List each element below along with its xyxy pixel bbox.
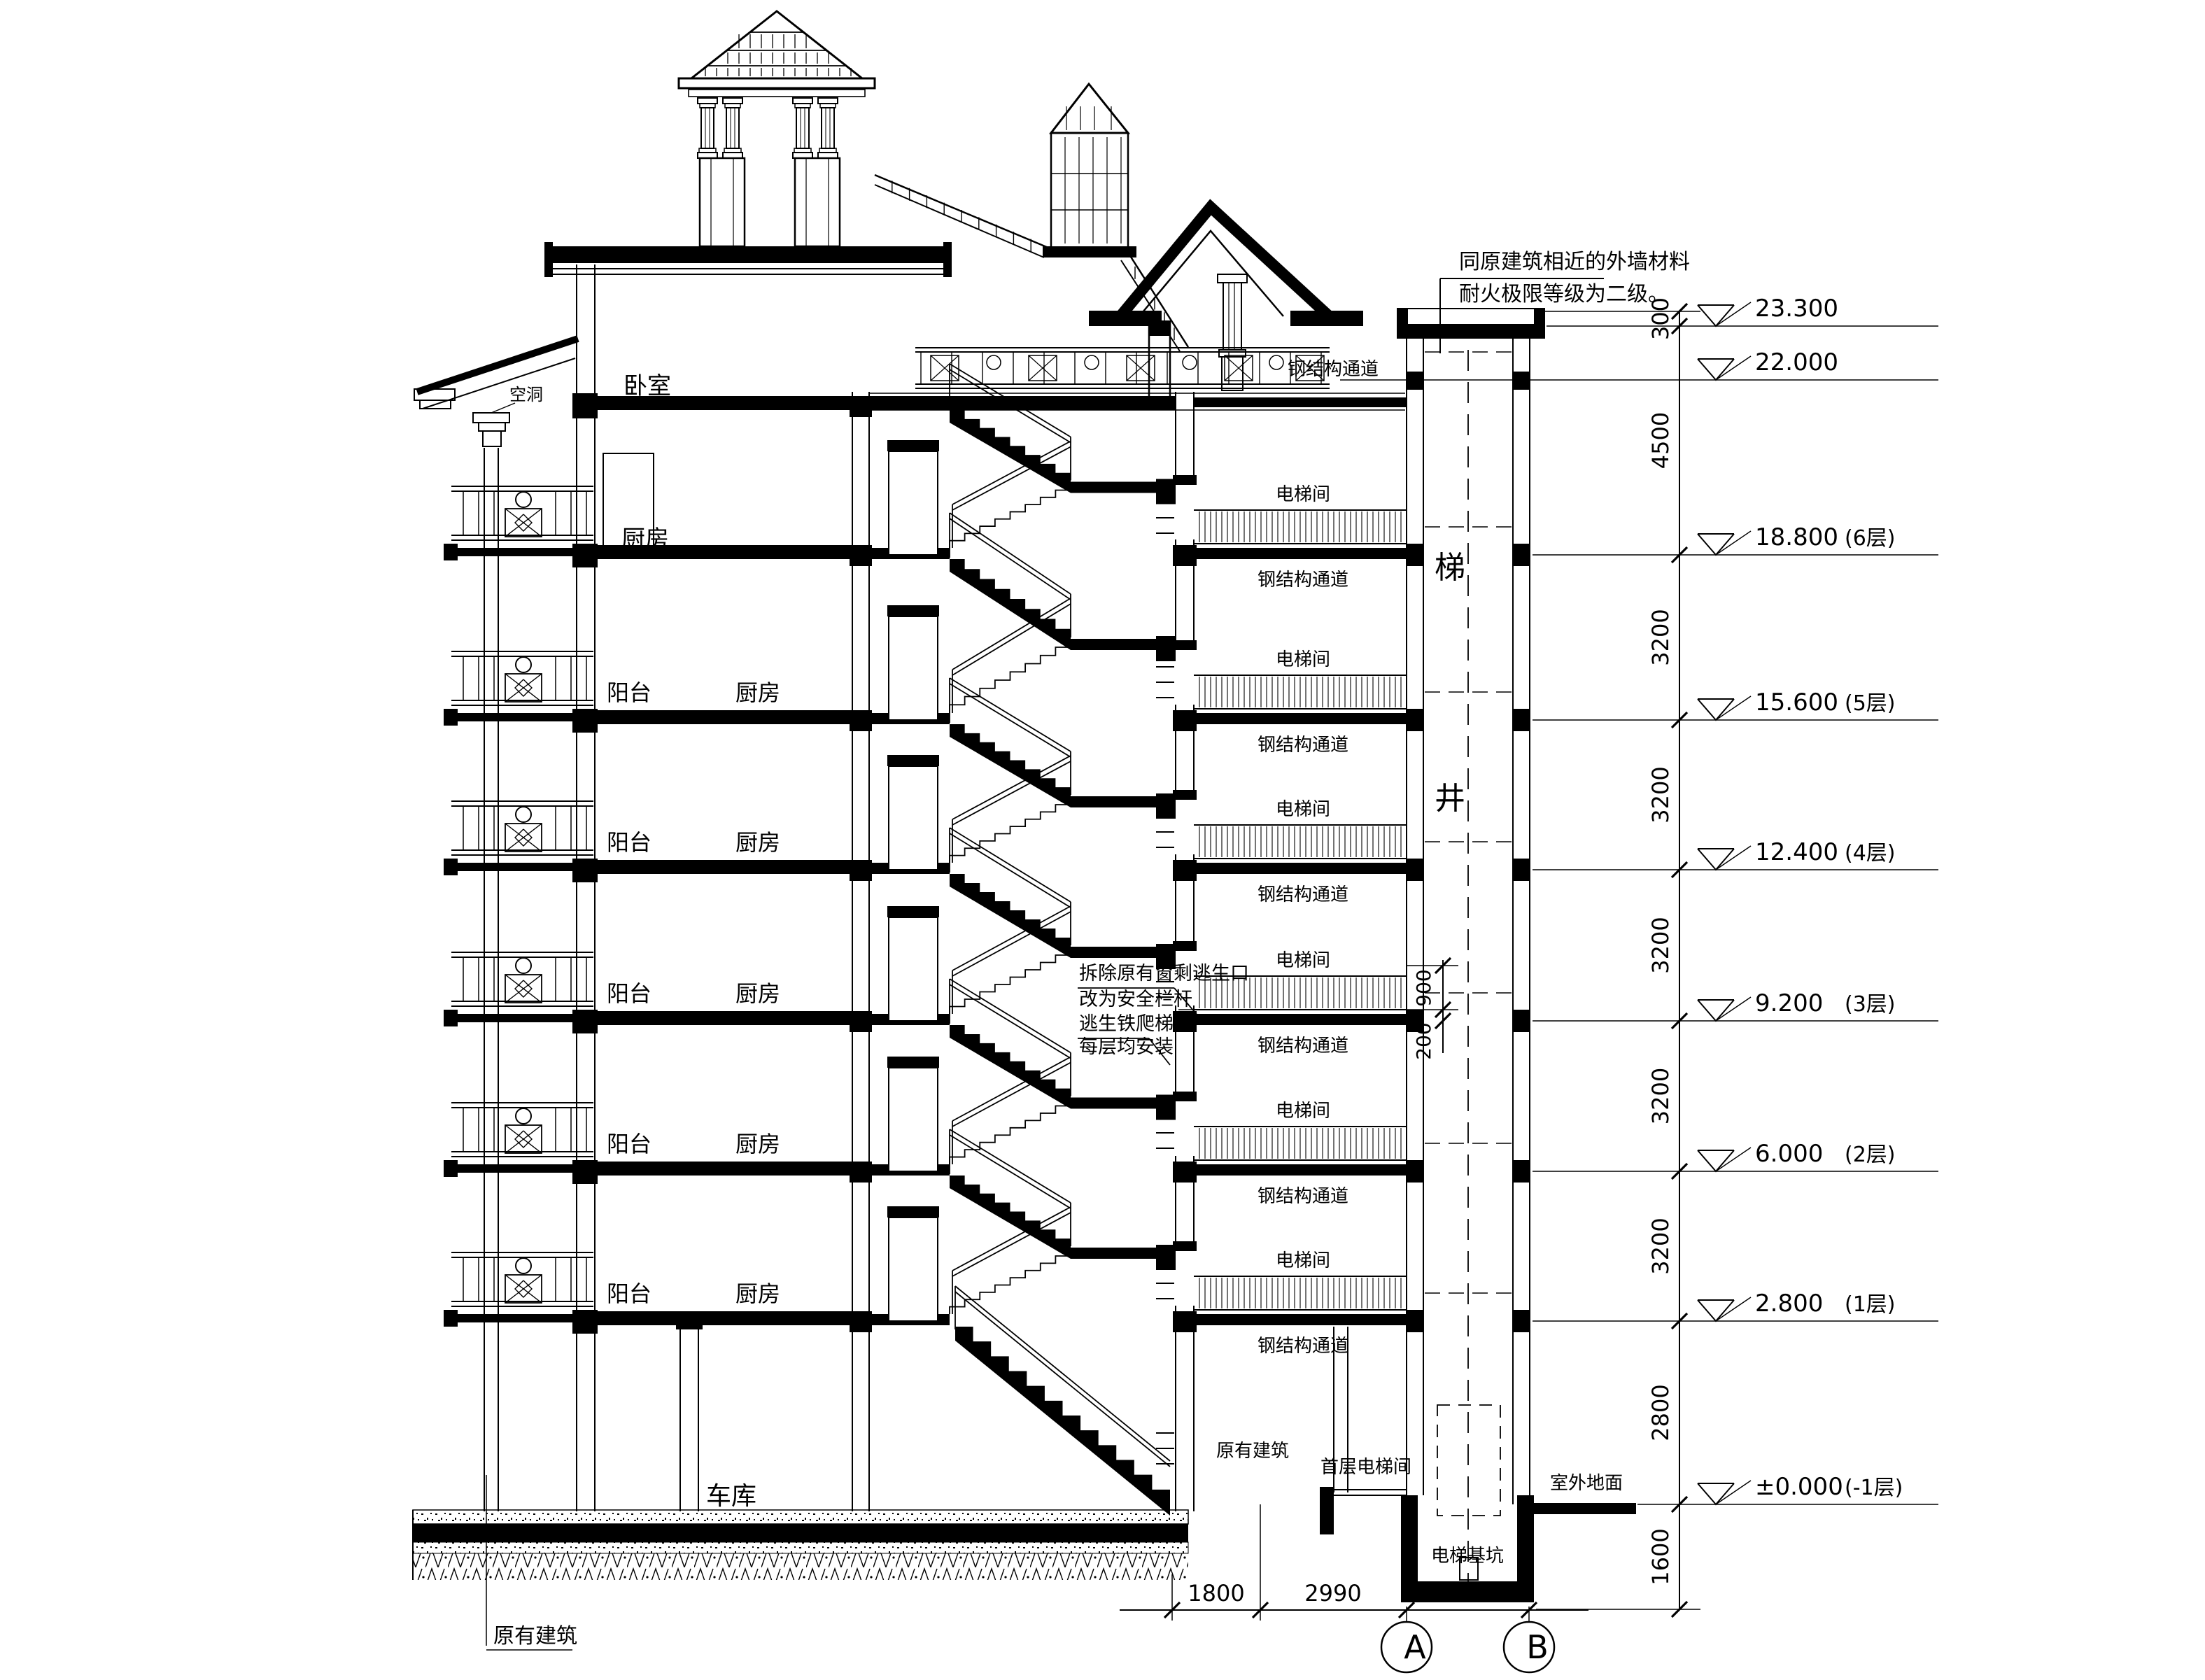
existing-building-label: 原有建筑 (1216, 1441, 1289, 1462)
first-floor-elevator-room-label: 首层电梯间 (1320, 1457, 1411, 1478)
elevation-floor: (1层) (1845, 1292, 1896, 1317)
elevation-floor: (4层) (1845, 841, 1896, 866)
shaft-char-well: 井 (1435, 781, 1465, 817)
elevation-value: 12.400 (1755, 838, 1838, 866)
architectural-section-sheet: 卧室厨房阳台厨房阳台厨房阳台厨房阳台厨房阳台厨房车库空洞钢结构通道电梯间钢结构通… (0, 0, 2205, 1680)
corridor-label: 钢结构通道 (1258, 1186, 1348, 1207)
corridor-label: 钢结构通道 (1258, 1036, 1348, 1057)
escape-note: 拆除原有窗剩逃生口 (1079, 963, 1249, 984)
dim-mid: 200 (1412, 1022, 1435, 1059)
escape-note: 每层均安装 (1079, 1036, 1174, 1058)
elevation-value: 22.000 (1755, 348, 1838, 376)
dim-mid: 900 (1412, 969, 1435, 1006)
elevator-room-label: 电梯间 (1276, 799, 1330, 820)
dim-bottom: 2500 (1439, 1580, 1495, 1607)
dim-bottom: 2990 (1304, 1580, 1361, 1607)
axis-bubble-b: B (1526, 1628, 1549, 1666)
room-label-balcony: 阳台 (607, 980, 651, 1007)
note-line: 同原建筑相近的外墙材料 (1459, 250, 1690, 274)
escape-note: 改为安全栏杆 (1079, 989, 1192, 1010)
room-label-balcony: 阳台 (607, 829, 651, 856)
elevation-value: 18.800 (1755, 523, 1838, 551)
corridor-label: 钢结构通道 (1288, 359, 1379, 380)
dim-right: 3200 (1647, 766, 1674, 823)
elevation-floor: (2层) (1845, 1143, 1896, 1167)
room-label-balcony: 阳台 (607, 679, 651, 706)
elevator-room-label: 电梯间 (1276, 1250, 1330, 1271)
dim-right: 3200 (1647, 1217, 1674, 1274)
existing-building-label: 原有建筑 (493, 1624, 577, 1649)
room-label-kitchen: 厨房 (621, 525, 669, 553)
elevation-floor: (6层) (1845, 526, 1896, 551)
room-label-balcony: 阳台 (607, 1131, 651, 1157)
corridor-label: 钢结构通道 (1258, 1336, 1348, 1357)
dim-right: 3200 (1647, 917, 1674, 973)
dim-right: 2800 (1647, 1384, 1674, 1441)
elevation-floor: (3层) (1845, 992, 1896, 1017)
room-label-balcony: 阳台 (607, 1280, 651, 1307)
outdoor-ground-label: 室外地面 (1550, 1473, 1623, 1494)
room-label-kitchen: 厨房 (735, 980, 780, 1007)
elevator-pit-label: 电梯基坑 (1431, 1546, 1504, 1567)
dim-right: 3200 (1647, 609, 1674, 665)
elevation-value: 9.200 (1755, 989, 1823, 1017)
escape-note: 逃生铁爬梯 (1079, 1013, 1174, 1035)
room-label-kitchen: 厨房 (735, 679, 780, 706)
room-label-garage: 车库 (706, 1482, 756, 1511)
elevation-value: 15.600 (1755, 689, 1838, 717)
elevator-room-label: 电梯间 (1276, 1101, 1330, 1122)
elevator-room-label: 电梯间 (1276, 484, 1330, 505)
elevator-room-label: 电梯间 (1276, 950, 1330, 971)
elevation-floor: (5层) (1845, 691, 1896, 716)
room-label-roof-void: 空洞 (509, 385, 543, 404)
shaft-char-stair: 梯 (1435, 550, 1465, 586)
corridor-label: 钢结构通道 (1258, 570, 1348, 591)
elevation-value: 23.300 (1755, 295, 1838, 323)
dim-bottom: 1800 (1188, 1580, 1244, 1607)
dim-right: 3200 (1647, 1068, 1674, 1124)
axis-bubble-a: A (1404, 1628, 1426, 1666)
room-label-kitchen: 厨房 (735, 1280, 780, 1307)
elevation-value: 2.800 (1755, 1290, 1823, 1318)
elevator-room-label: 电梯间 (1276, 649, 1330, 670)
room-label-kitchen: 厨房 (735, 829, 780, 856)
building-section-drawing: 卧室厨房阳台厨房阳台厨房阳台厨房阳台厨房阳台厨房车库空洞钢结构通道电梯间钢结构通… (0, 0, 2205, 1680)
note-line: 耐火极限等级为二级。 (1459, 282, 1669, 306)
dim-right: 300 (1647, 297, 1674, 340)
room-label-bedroom: 卧室 (624, 372, 671, 400)
corridor-label: 钢结构通道 (1258, 884, 1348, 905)
corridor-label: 钢结构通道 (1258, 735, 1348, 756)
dim-right: 4500 (1647, 412, 1674, 469)
elevation-value: 6.000 (1755, 1140, 1823, 1168)
room-label-kitchen: 厨房 (735, 1131, 780, 1157)
elevation-value: ±0.000 (1755, 1473, 1843, 1501)
dim-right: 1600 (1647, 1528, 1674, 1585)
elevation-floor: (-1层) (1845, 1476, 1903, 1500)
